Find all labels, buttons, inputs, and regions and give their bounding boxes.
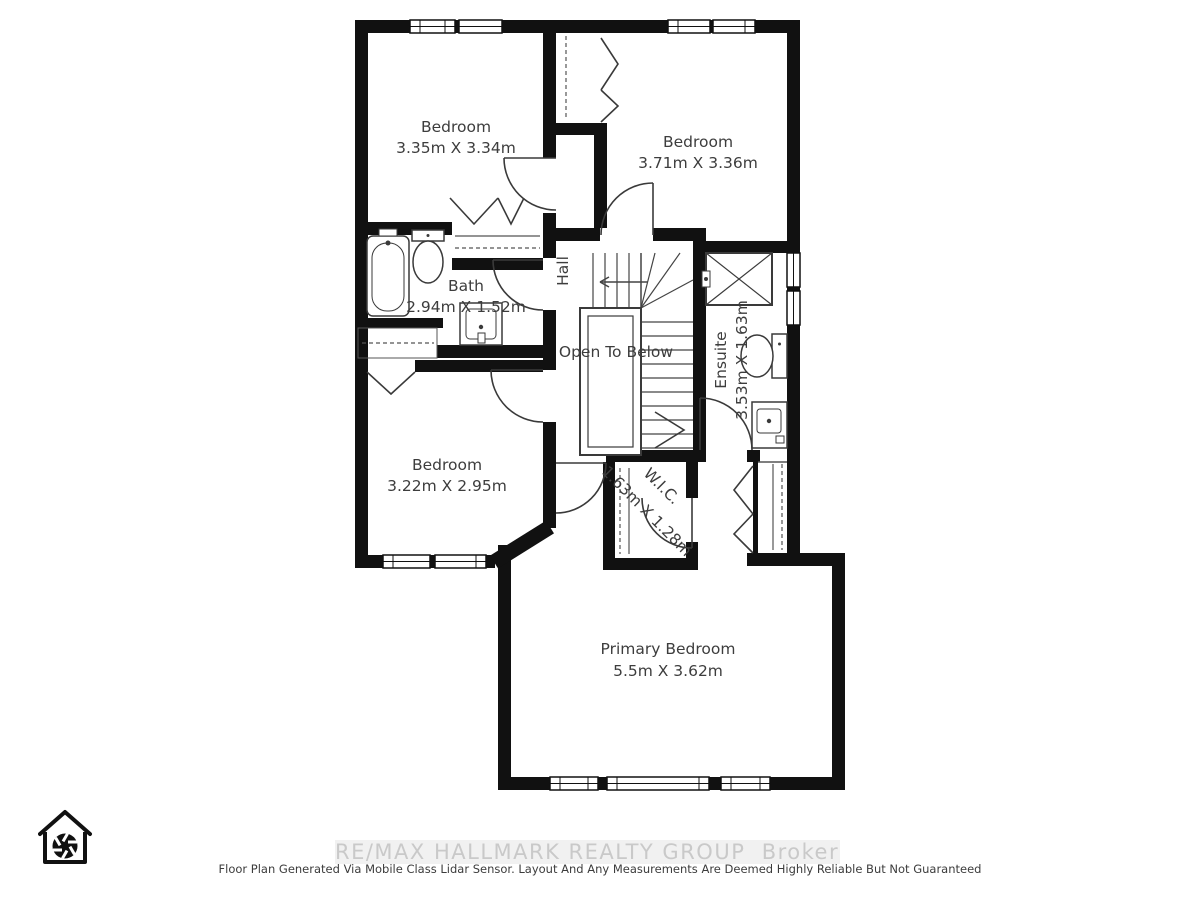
toilet-icon	[412, 230, 444, 283]
room-label-primary-bedroom: Primary Bedroom	[601, 640, 736, 658]
room-dims-ensuite: 3.53m X 1.63m	[733, 300, 751, 420]
room-dims-bedroom-mid-left: 3.22m X 2.95m	[387, 477, 507, 495]
room-label-open-to-below: Open To Below	[559, 343, 674, 361]
chamfer-wall	[494, 527, 550, 562]
house-camera-aperture-icon	[38, 806, 94, 866]
brokerage-watermark: RE/MAX HALLMARK REALTY GROUP Brokerage	[335, 840, 840, 864]
room-dims-primary-bedroom: 5.5m X 3.62m	[613, 662, 723, 680]
room-label-bedroom-top-right: Bedroom	[663, 133, 733, 151]
room-dims-bath: 2.94m X 1.52m	[406, 298, 526, 316]
room-label-ensuite: Ensuite	[712, 331, 730, 388]
shower-icon	[702, 253, 772, 305]
open-to-below-void	[580, 308, 641, 455]
room-dims-bedroom-top-left: 3.35m X 3.34m	[396, 139, 516, 157]
floor-plan-page: Bedroom 3.35m X 3.34m Bedroom 3.71m X 3.…	[0, 0, 1200, 900]
ensuite-sink-icon	[752, 402, 787, 448]
room-label-bedroom-top-left: Bedroom	[421, 118, 491, 136]
room-label-hall: Hall	[554, 256, 572, 286]
floor-plan-drawing: Bedroom 3.35m X 3.34m Bedroom 3.71m X 3.…	[0, 0, 1200, 900]
bathtub-icon	[367, 229, 409, 316]
room-label-bedroom-mid-left: Bedroom	[412, 456, 482, 474]
room-label-bath: Bath	[448, 277, 484, 295]
disclaimer-text: Floor Plan Generated Via Mobile Class Li…	[0, 862, 1200, 876]
room-dims-bedroom-top-right: 3.71m X 3.36m	[638, 154, 758, 172]
